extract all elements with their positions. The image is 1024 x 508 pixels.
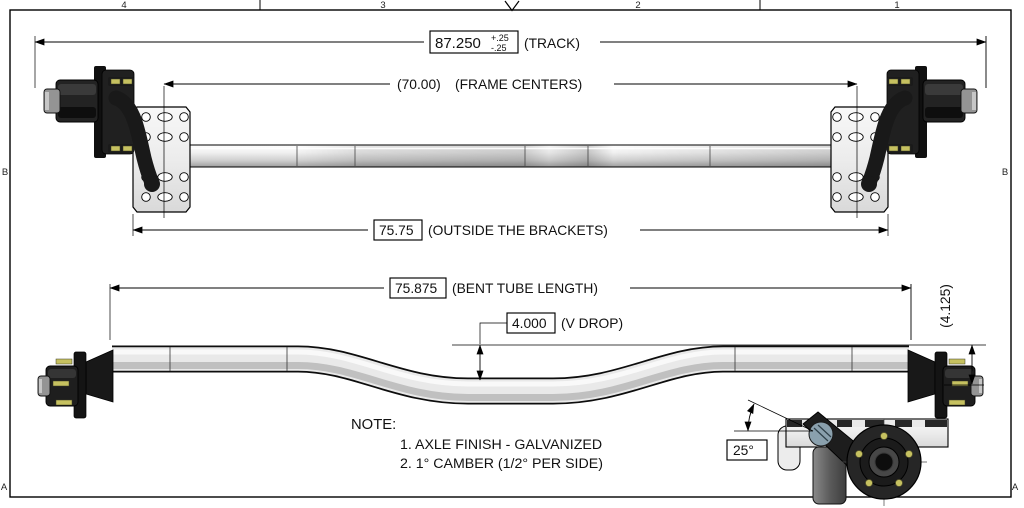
track-value: 87.250 bbox=[435, 35, 481, 52]
frame-centers-dimension: (70.00) (FRAME CENTERS) bbox=[164, 77, 857, 92]
zone-label-left-b: B bbox=[2, 167, 8, 178]
v-drop-label: (V DROP) bbox=[561, 316, 623, 331]
bent-axle-view bbox=[38, 284, 983, 418]
note-title: NOTE: bbox=[351, 417, 396, 433]
outside-brackets-label: (OUTSIDE THE BRACKETS) bbox=[428, 223, 608, 238]
frame-centers-label: (FRAME CENTERS) bbox=[455, 77, 582, 92]
note-line-1: 1. AXLE FINISH - GALVANIZED bbox=[400, 437, 602, 453]
zone-label-top-3: 3 bbox=[380, 0, 385, 11]
note-line-2: 2. 1° CAMBER (1/2° PER SIDE) bbox=[400, 456, 603, 472]
notes-block: NOTE: 1. AXLE FINISH - GALVANIZED 2. 1° … bbox=[351, 417, 603, 472]
track-tol-minus: -.25 bbox=[491, 43, 507, 53]
zone-label-top-1: 1 bbox=[894, 0, 899, 11]
track-tol-plus: +.25 bbox=[491, 33, 509, 43]
bent-left-hub bbox=[38, 284, 113, 418]
outside-brackets-value: 75.75 bbox=[379, 223, 414, 238]
hub-drop-value: (4.125) bbox=[938, 284, 953, 328]
axle-engineering-drawing: 4 3 2 1 B B A A 87.250 +.25 -.25 (TRACK)… bbox=[0, 0, 1024, 508]
frame-centers-value: (70.00) bbox=[397, 77, 441, 92]
right-hub-and-bracket bbox=[831, 36, 986, 236]
zone-label-bottomright-a: A bbox=[1012, 482, 1019, 493]
zone-label-top-2: 2 bbox=[635, 0, 640, 11]
arm-angle-value: 25° bbox=[733, 443, 754, 458]
v-drop-value: 4.000 bbox=[512, 316, 547, 331]
zone-label-right-b: B bbox=[1002, 167, 1008, 178]
bent-tube-length-dimension: 75.875 (BENT TUBE LENGTH) bbox=[110, 278, 911, 340]
arm-angle-detail-view: 25° bbox=[727, 400, 948, 506]
bent-tube-label: (BENT TUBE LENGTH) bbox=[452, 281, 598, 296]
zone-label-bottomleft-a: A bbox=[1, 482, 8, 493]
left-hub-and-bracket bbox=[35, 36, 190, 236]
bent-tube bbox=[112, 347, 909, 398]
straight-axle-view bbox=[35, 36, 986, 236]
bent-tube-value: 75.875 bbox=[395, 281, 438, 296]
center-zone-marker bbox=[505, 1, 519, 11]
track-label: (TRACK) bbox=[524, 36, 580, 51]
outside-brackets-dimension: 75.75 (OUTSIDE THE BRACKETS) bbox=[133, 220, 888, 240]
zone-label-top-4: 4 bbox=[121, 0, 126, 11]
